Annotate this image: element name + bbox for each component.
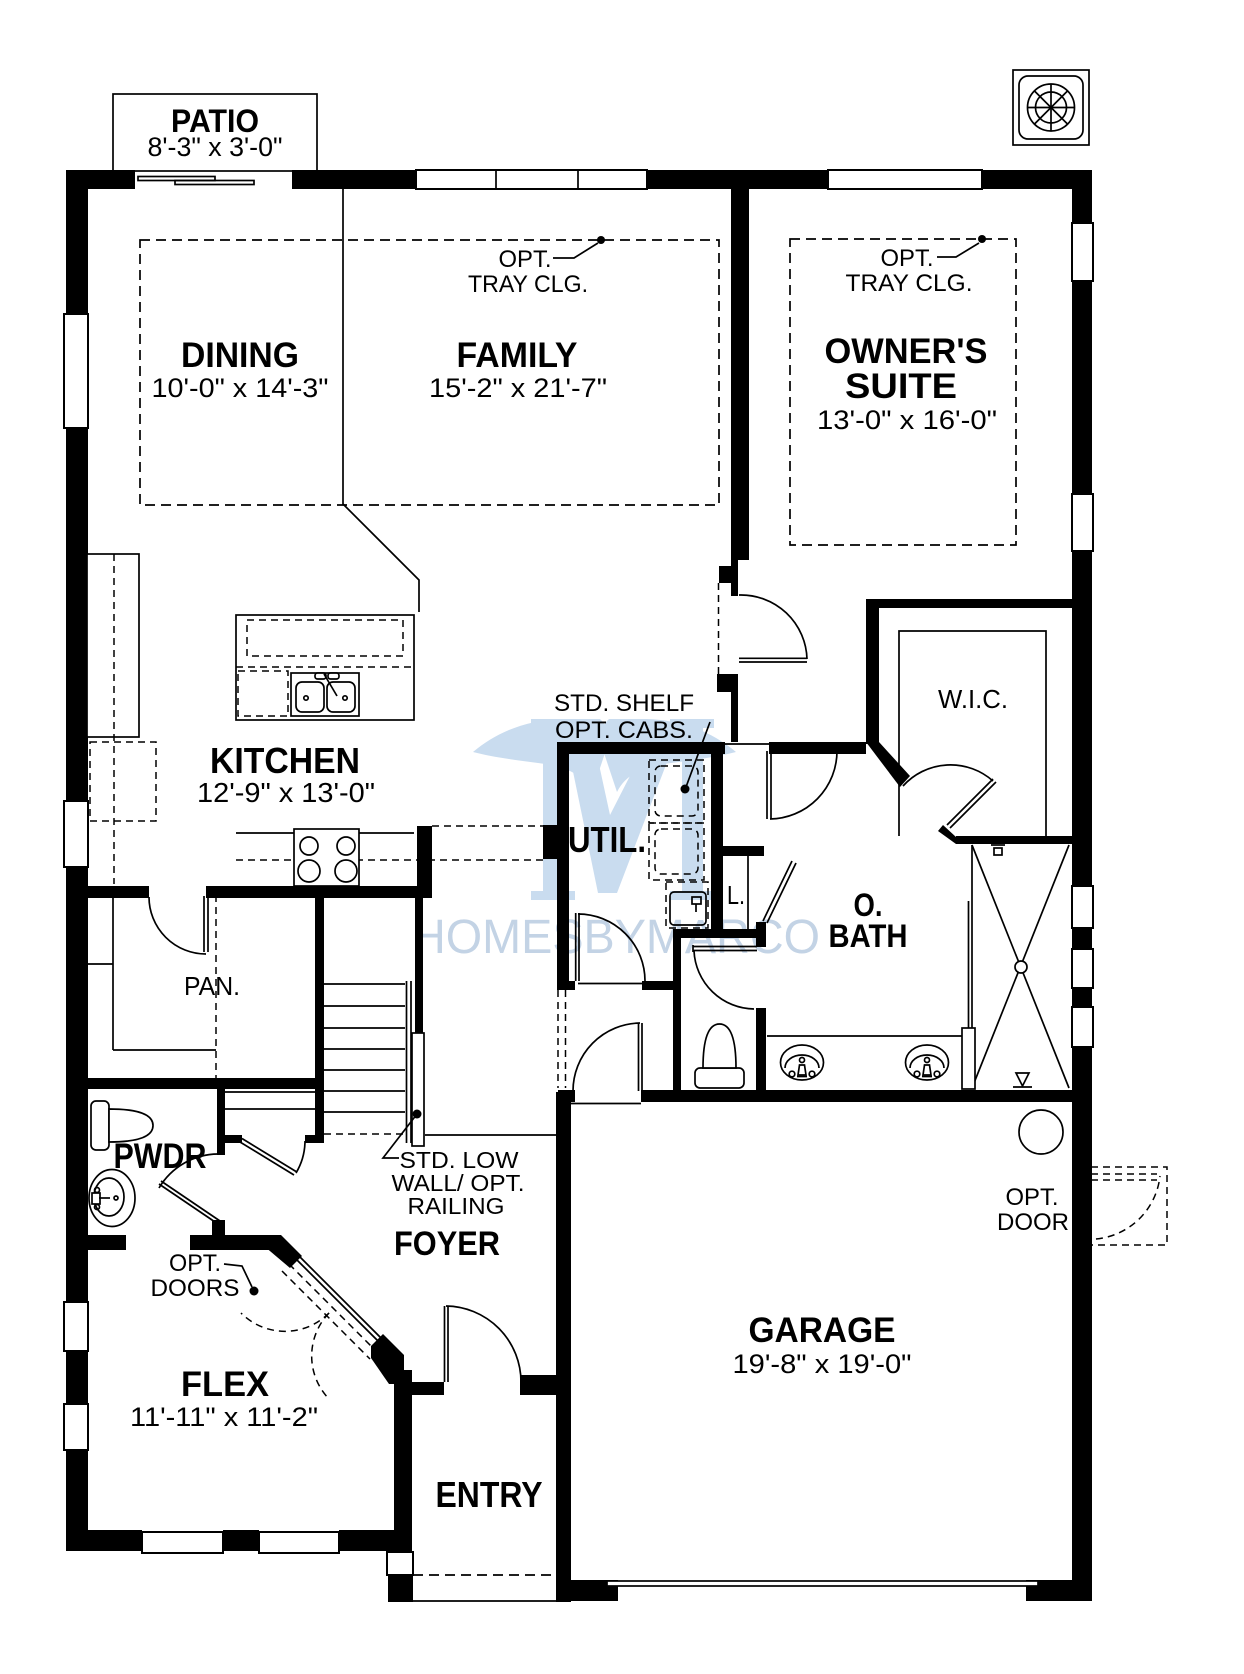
svg-text:OWNER'S: OWNER'S (825, 332, 988, 371)
svg-text:W.I.C.: W.I.C. (938, 684, 1008, 714)
svg-text:TRAY CLG.: TRAY CLG. (846, 270, 973, 297)
svg-text:SUITE: SUITE (845, 367, 957, 406)
svg-text:DINING: DINING (181, 336, 299, 375)
svg-text:L.: L. (727, 880, 745, 910)
svg-text:RAILING: RAILING (408, 1193, 505, 1219)
svg-text:10'-0" x 14'-3": 10'-0" x 14'-3" (152, 373, 329, 403)
svg-text:OPT.: OPT. (499, 246, 552, 273)
svg-text:FLEX: FLEX (181, 1365, 270, 1404)
svg-text:OPT.: OPT. (1006, 1184, 1059, 1211)
svg-text:OPT.: OPT. (169, 1250, 221, 1277)
svg-text:DOORS: DOORS (151, 1275, 240, 1302)
svg-text:FAMILY: FAMILY (457, 336, 578, 375)
svg-text:13'-0" x 16'-0": 13'-0" x 16'-0" (817, 405, 997, 435)
svg-text:ENTRY: ENTRY (436, 1474, 543, 1515)
svg-text:UTIL.: UTIL. (568, 819, 646, 860)
svg-text:19'-8" x 19'-0": 19'-8" x 19'-0" (733, 1349, 912, 1379)
svg-text:KITCHEN: KITCHEN (210, 740, 360, 781)
svg-text:OPT. CABS.: OPT. CABS. (555, 717, 693, 744)
svg-text:15'-2" x 21'-7": 15'-2" x 21'-7" (429, 373, 607, 403)
svg-text:8'-3" x 3'-0": 8'-3" x 3'-0" (148, 132, 283, 162)
svg-text:11'-11" x 11'-2": 11'-11" x 11'-2" (130, 1402, 318, 1432)
svg-text:TRAY CLG.: TRAY CLG. (468, 271, 588, 298)
svg-text:BATH: BATH (829, 918, 908, 954)
svg-text:FOYER: FOYER (394, 1225, 500, 1263)
svg-text:PWDR: PWDR (114, 1137, 207, 1176)
svg-text:STD. SHELF: STD. SHELF (554, 690, 694, 717)
svg-text:DOOR: DOOR (997, 1209, 1069, 1236)
svg-text:OPT.: OPT. (881, 245, 934, 272)
svg-text:PAN.: PAN. (184, 971, 240, 1001)
svg-text:12'-9" x 13'-0": 12'-9" x 13'-0" (197, 777, 375, 808)
svg-text:GARAGE: GARAGE (749, 1311, 896, 1350)
